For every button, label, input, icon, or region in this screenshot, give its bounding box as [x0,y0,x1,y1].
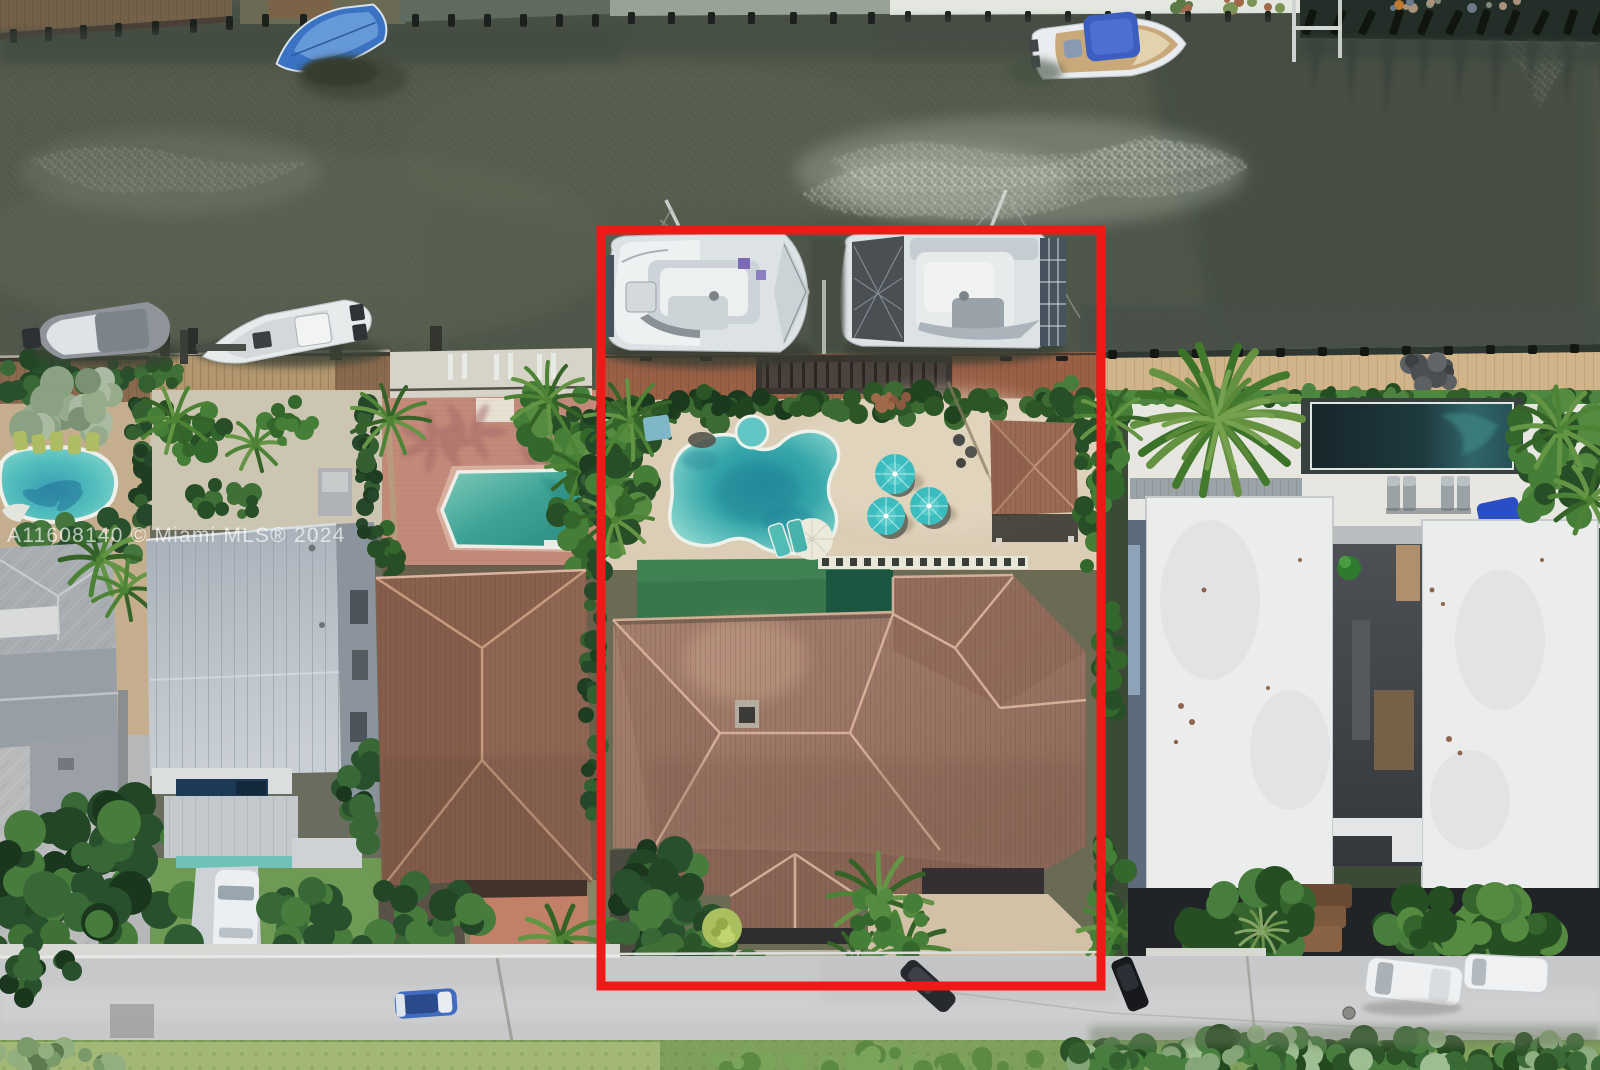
svg-text:A11608140 © Miami MLS® 2024: A11608140 © Miami MLS® 2024 [7,524,345,547]
